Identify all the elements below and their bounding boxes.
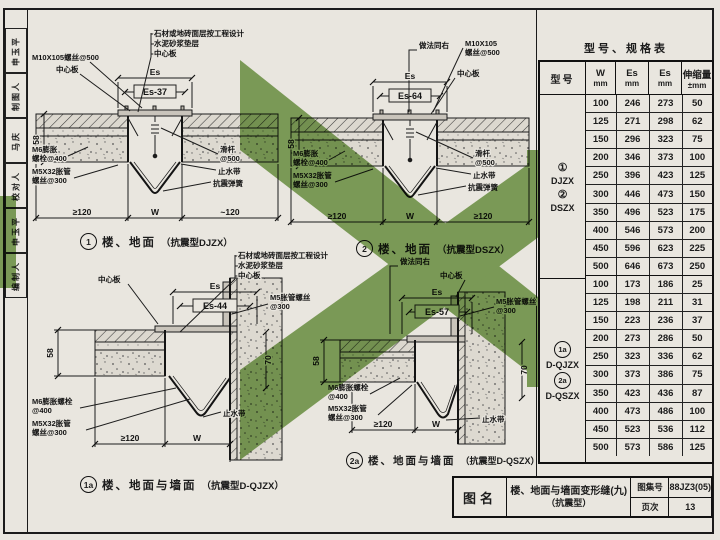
spec-cell: 400 bbox=[586, 402, 616, 420]
model-name: D-QJZX bbox=[546, 360, 579, 370]
spec-row: 15029632375 bbox=[586, 131, 712, 149]
model-name: D-QSZX bbox=[545, 391, 579, 401]
sidebar-cell: 校对人 bbox=[5, 163, 27, 208]
dim-left: ≥120 bbox=[73, 207, 92, 217]
note-m5x32: M5X32胀管 bbox=[293, 170, 332, 180]
spec-cell: 173 bbox=[616, 275, 649, 293]
atlas-number-label: 图集号 bbox=[631, 478, 669, 497]
model-mark: ② bbox=[558, 188, 568, 201]
spec-cell: 523 bbox=[616, 420, 649, 438]
sheet-border-top bbox=[3, 8, 714, 10]
spec-cell: 500 bbox=[586, 257, 616, 275]
spec-table-title: 型号、规格表 bbox=[538, 40, 714, 56]
spec-cell: 546 bbox=[616, 221, 649, 239]
spec-cell: 100 bbox=[682, 402, 712, 420]
dim-es: Es bbox=[432, 287, 443, 297]
spec-cell: 473 bbox=[649, 185, 682, 203]
spec-cell: 271 bbox=[616, 113, 649, 131]
note-rod: 滑杆 bbox=[475, 148, 490, 158]
spec-row: 35042343687 bbox=[586, 384, 712, 402]
spec-cell: 50 bbox=[682, 95, 712, 113]
dim-right: ~120 bbox=[220, 207, 239, 217]
spec-cell: 200 bbox=[586, 149, 616, 167]
note-m6: 螺栓@400 bbox=[32, 153, 67, 163]
col-header-es2: Es mm bbox=[649, 62, 682, 94]
detail-caption-type: （抗震型DSZX） bbox=[437, 242, 510, 256]
detail-2a-drawing: 做法同右 中心板 Es Es-57 M5胀管螺丝 @300 58 70 M6膨胀… bbox=[300, 252, 540, 452]
note-m10: 螺丝@500 bbox=[465, 47, 500, 57]
detail-2-caption: 2 楼、地面 （抗震型DSZX） bbox=[356, 240, 510, 257]
dim-depth: 58 bbox=[31, 135, 41, 145]
note-rod: @500 bbox=[475, 158, 495, 167]
dim-wall: 70 bbox=[519, 365, 529, 375]
spec-cell: 296 bbox=[616, 131, 649, 149]
spec-row: 300446473150 bbox=[586, 185, 712, 203]
sidebar-role: 制图人 bbox=[11, 81, 22, 111]
detail-caption-text: 楼、地面 bbox=[102, 234, 156, 250]
model-name: DJZX bbox=[551, 176, 574, 186]
spec-cell: 223 bbox=[616, 312, 649, 330]
spec-row: 20027328650 bbox=[586, 330, 712, 348]
note-layer1: 石材或地砖面层按工程设计 bbox=[153, 28, 244, 38]
dim-es: Es bbox=[405, 71, 416, 81]
page-number: 13 bbox=[669, 498, 711, 517]
dim-es-span: Es-57 bbox=[425, 307, 449, 317]
spec-cell: 75 bbox=[682, 366, 712, 384]
note-waterstop: 止水带 bbox=[473, 170, 496, 180]
spec-cell: 286 bbox=[649, 330, 682, 348]
spec-cell: 450 bbox=[586, 239, 616, 257]
model-mark: ① bbox=[558, 161, 568, 174]
detail-number-badge: 1a bbox=[80, 476, 97, 493]
spec-cell: 323 bbox=[616, 348, 649, 366]
sidebar-cell: 申玉平 bbox=[5, 28, 27, 73]
dim-mid: W bbox=[193, 433, 202, 443]
model-column: 型号 ① DJZX ② DSZX 1a D-QJZX 2a D-QSZX bbox=[540, 62, 586, 462]
model-mark: 1a bbox=[554, 341, 571, 358]
spec-cell: 125 bbox=[682, 167, 712, 185]
dim-es-span: Es-44 bbox=[203, 301, 227, 311]
spec-cell: 236 bbox=[649, 312, 682, 330]
note-spring: 抗震弹簧 bbox=[468, 182, 498, 192]
spec-cell: 573 bbox=[649, 221, 682, 239]
dim-left: ≥120 bbox=[374, 419, 393, 429]
spec-cell: 496 bbox=[616, 203, 649, 221]
spec-row: 25032333662 bbox=[586, 348, 712, 366]
note-waterstop: 止水带 bbox=[223, 408, 246, 418]
spec-cell: 373 bbox=[649, 149, 682, 167]
spec-row: 12519821131 bbox=[586, 294, 712, 312]
spec-row: 400546573200 bbox=[586, 221, 712, 239]
spec-cell: 446 bbox=[616, 185, 649, 203]
spec-cell: 125 bbox=[586, 294, 616, 312]
detail-number-badge: 1 bbox=[80, 233, 97, 250]
note-same-as: 做法同右 bbox=[399, 256, 430, 266]
note-waterstop: 止水带 bbox=[482, 414, 505, 424]
note-layer2: 水泥砂浆垫层 bbox=[154, 38, 199, 48]
note-rod: @500 bbox=[220, 154, 240, 163]
dim-depth: 58 bbox=[286, 139, 296, 149]
dim-es-span: Es-37 bbox=[143, 87, 167, 97]
spec-cell: 75 bbox=[682, 131, 712, 149]
spec-cell: 646 bbox=[616, 257, 649, 275]
spec-cell: 175 bbox=[682, 203, 712, 221]
spec-cell: 573 bbox=[616, 438, 649, 456]
detail-caption-type: （抗震型D-QSZX） bbox=[461, 454, 540, 467]
spec-cell: 186 bbox=[649, 275, 682, 293]
note-m5: @300 bbox=[496, 306, 516, 315]
dim-mid: W bbox=[406, 211, 415, 221]
detail-2a-caption: 2a 楼、地面与墙面 （抗震型D-QSZX） bbox=[346, 452, 540, 469]
col-header-es1: Es mm bbox=[616, 62, 649, 94]
note-center-plate: 中心板 bbox=[440, 270, 463, 280]
spec-row: 500646673250 bbox=[586, 257, 712, 275]
note-same-as: 做法同右 bbox=[418, 40, 449, 50]
model-mark: 2a bbox=[554, 372, 571, 389]
spec-cell: 62 bbox=[682, 348, 712, 366]
spec-cell: 350 bbox=[586, 203, 616, 221]
dim-depth: 58 bbox=[311, 356, 321, 366]
sheet-border-bottom bbox=[3, 532, 714, 534]
sidebar-cell: 编制人 bbox=[5, 253, 27, 298]
spec-cell: 400 bbox=[586, 221, 616, 239]
detail-1a-caption: 1a 楼、地面与墙面 （抗震型D-QJZX） bbox=[80, 476, 284, 493]
spec-row: 450523536112 bbox=[586, 420, 712, 438]
spec-cell: 350 bbox=[586, 384, 616, 402]
spec-cell: 673 bbox=[649, 257, 682, 275]
spec-cell: 436 bbox=[649, 384, 682, 402]
spec-row: 350496523175 bbox=[586, 203, 712, 221]
spec-cell: 323 bbox=[649, 131, 682, 149]
spec-cell: 300 bbox=[586, 185, 616, 203]
spec-cell: 423 bbox=[649, 167, 682, 185]
sidebar-name: 申玉平 bbox=[11, 216, 22, 246]
note-m6: M6膨胀螺栓 bbox=[328, 382, 369, 392]
spec-cell: 250 bbox=[682, 257, 712, 275]
note-m5x32: 螺丝@300 bbox=[328, 412, 363, 422]
note-m5x32: M5X32胀管 bbox=[32, 418, 71, 428]
note-m6: @400 bbox=[32, 406, 52, 415]
spec-cell: 150 bbox=[586, 312, 616, 330]
spec-cell: 250 bbox=[586, 167, 616, 185]
spec-cell: 100 bbox=[586, 275, 616, 293]
drawing-name-label: 图名 bbox=[454, 478, 507, 516]
title-block: 图名 楼、地面与墙面变形缝(九) （抗震型） 图集号 88JZ3(05) 页次 … bbox=[452, 476, 713, 518]
spec-row: 12527129862 bbox=[586, 113, 712, 131]
dim-right: ≥120 bbox=[474, 211, 493, 221]
detail-caption-type: （抗震型D-QJZX） bbox=[202, 478, 284, 492]
spec-cell: 273 bbox=[649, 95, 682, 113]
note-center-plate: 中心板 bbox=[98, 274, 121, 284]
note-m5: @300 bbox=[270, 302, 290, 311]
spec-cell: 336 bbox=[649, 348, 682, 366]
dim-left: ≥120 bbox=[121, 433, 140, 443]
atlas-sheet: { "sheet": { "paper": "#e9e6df", "ink": … bbox=[0, 0, 720, 540]
spec-cell: 246 bbox=[616, 95, 649, 113]
note-m5x32: 螺丝@300 bbox=[32, 175, 67, 185]
spec-cell: 62 bbox=[682, 113, 712, 131]
spec-cell: 125 bbox=[586, 113, 616, 131]
spec-cell: 100 bbox=[682, 149, 712, 167]
detail-1-drawing: M10X105螺丝@500 中心板 石材或地砖面层按工程设计 水泥砂浆垫层 中心… bbox=[30, 28, 285, 233]
spec-row: 30037338675 bbox=[586, 366, 712, 384]
note-m5x32: M5X32胀管 bbox=[32, 166, 71, 176]
detail-number-badge: 2 bbox=[356, 240, 373, 257]
spec-cell: 450 bbox=[586, 420, 616, 438]
model-group-2: 1a D-QJZX 2a D-QSZX bbox=[540, 279, 585, 462]
model-name: DSZX bbox=[550, 203, 574, 213]
spec-cell: 423 bbox=[616, 384, 649, 402]
note-m6: @400 bbox=[328, 392, 348, 401]
spec-cell: 150 bbox=[586, 131, 616, 149]
spec-table: 型号、规格表 型号 ① DJZX ② DSZX 1a D-QJZX 2a D-Q… bbox=[538, 40, 714, 464]
sidebar-cell: 马庆 bbox=[5, 118, 27, 163]
spec-cell: 200 bbox=[682, 221, 712, 239]
spec-cell: 31 bbox=[682, 294, 712, 312]
spec-row: 500573586125 bbox=[586, 438, 712, 456]
spec-row: 200346373100 bbox=[586, 149, 712, 167]
detail-1-caption: 1 楼、地面 （抗震型DJZX） bbox=[80, 233, 233, 250]
spec-row: 450596623225 bbox=[586, 239, 712, 257]
spec-cell: 112 bbox=[682, 420, 712, 438]
detail-2-drawing: 做法同右 M10X105 螺丝@500 中心板 Es Es-64 58 ≥120… bbox=[285, 32, 535, 237]
dim-es: Es bbox=[150, 67, 161, 77]
spec-cell: 536 bbox=[649, 420, 682, 438]
dim-depth: 58 bbox=[45, 348, 55, 358]
spec-cell: 346 bbox=[616, 149, 649, 167]
note-layer3: 中心板 bbox=[154, 48, 177, 58]
dim-wall: 70 bbox=[263, 355, 273, 365]
dim-mid: W bbox=[432, 419, 441, 429]
model-header: 型号 bbox=[540, 62, 585, 95]
page-number-label: 页次 bbox=[631, 498, 669, 517]
note-m5x32: 螺丝@300 bbox=[293, 179, 328, 189]
note-m5x32: 螺丝@300 bbox=[32, 427, 67, 437]
spec-cell: 586 bbox=[649, 438, 682, 456]
sidebar-role: 编制人 bbox=[11, 261, 22, 291]
dim-es-span: Es-64 bbox=[398, 91, 422, 101]
dim-mid: W bbox=[151, 207, 160, 217]
sidebar-name: 申玉平 bbox=[11, 36, 22, 66]
spec-row: 400473486100 bbox=[586, 402, 712, 420]
spec-cell: 198 bbox=[616, 294, 649, 312]
spec-cell: 87 bbox=[682, 384, 712, 402]
spec-values: 1002462735012527129862150296323752003463… bbox=[586, 95, 712, 456]
spec-column-headers: W mm Es mm Es mm 伸缩量 ±mm bbox=[586, 62, 712, 95]
spec-cell: 298 bbox=[649, 113, 682, 131]
sidebar-cell: 申玉平 bbox=[5, 208, 27, 253]
spec-cell: 225 bbox=[682, 239, 712, 257]
drawing-title: 楼、地面与墙面变形缝(九) （抗震型） bbox=[507, 478, 631, 516]
spec-cell: 500 bbox=[586, 438, 616, 456]
detail-caption-text: 楼、地面与墙面 bbox=[102, 477, 197, 493]
sidebar-name: 马庆 bbox=[11, 131, 22, 151]
spec-cell: 300 bbox=[586, 366, 616, 384]
spec-row: 15022323637 bbox=[586, 312, 712, 330]
dim-left: ≥120 bbox=[328, 211, 347, 221]
spec-cell: 37 bbox=[682, 312, 712, 330]
sidebar-cell: 制图人 bbox=[5, 73, 27, 118]
spec-row: 250396423125 bbox=[586, 167, 712, 185]
spec-row: 10024627350 bbox=[586, 95, 712, 113]
note-m10: M10X105 bbox=[465, 39, 497, 48]
spec-cell: 373 bbox=[616, 366, 649, 384]
note-rod: 滑杆 bbox=[220, 144, 235, 154]
spec-cell: 386 bbox=[649, 366, 682, 384]
spec-cell: 596 bbox=[616, 239, 649, 257]
spec-cell: 523 bbox=[649, 203, 682, 221]
dim-es: Es bbox=[210, 281, 221, 291]
detail-caption-text: 楼、地面 bbox=[378, 241, 432, 257]
col-header-w: W mm bbox=[586, 62, 616, 94]
note-m10: M10X105螺丝@500 bbox=[32, 52, 99, 62]
sidebar-role: 校对人 bbox=[11, 171, 22, 201]
note-m6: M6膨胀螺栓 bbox=[32, 396, 73, 406]
spec-cell: 125 bbox=[682, 438, 712, 456]
sidebar-divider bbox=[27, 8, 28, 532]
model-group-1: ① DJZX ② DSZX bbox=[540, 95, 585, 279]
note-layer3: 中心板 bbox=[238, 270, 261, 280]
col-header-range: 伸缩量 ±mm bbox=[682, 62, 712, 94]
detail-caption-type: （抗震型DJZX） bbox=[161, 235, 233, 249]
note-m6: M6膨胀 bbox=[32, 144, 58, 154]
note-waterstop: 止水带 bbox=[218, 166, 241, 176]
atlas-number: 88JZ3(05) bbox=[669, 478, 711, 497]
spec-cell: 50 bbox=[682, 330, 712, 348]
note-m6: M6膨胀 bbox=[293, 148, 319, 158]
detail-number-badge: 2a bbox=[346, 452, 363, 469]
note-center-plate: 中心板 bbox=[457, 68, 480, 78]
linework bbox=[54, 255, 282, 462]
spec-row: 10017318625 bbox=[586, 275, 712, 293]
spec-cell: 150 bbox=[682, 185, 712, 203]
spec-cell: 273 bbox=[616, 330, 649, 348]
note-center-plate: 中心板 bbox=[56, 64, 79, 74]
note-layer2: 水泥砂浆垫层 bbox=[238, 260, 283, 270]
spec-cell: 100 bbox=[586, 95, 616, 113]
note-spring: 抗震弹簧 bbox=[213, 178, 243, 188]
note-m5x32: M5X32胀管 bbox=[328, 403, 367, 413]
spec-cell: 486 bbox=[649, 402, 682, 420]
spec-cell: 211 bbox=[649, 294, 682, 312]
spec-cell: 396 bbox=[616, 167, 649, 185]
spec-cell: 200 bbox=[586, 330, 616, 348]
detail-caption-text: 楼、地面与墙面 bbox=[368, 453, 456, 468]
note-m6: 螺栓@400 bbox=[293, 157, 328, 167]
spec-cell: 25 bbox=[682, 275, 712, 293]
spec-cell: 473 bbox=[616, 402, 649, 420]
note-m5: M5胀管螺丝 bbox=[496, 296, 537, 306]
spec-cell: 250 bbox=[586, 348, 616, 366]
spec-cell: 623 bbox=[649, 239, 682, 257]
